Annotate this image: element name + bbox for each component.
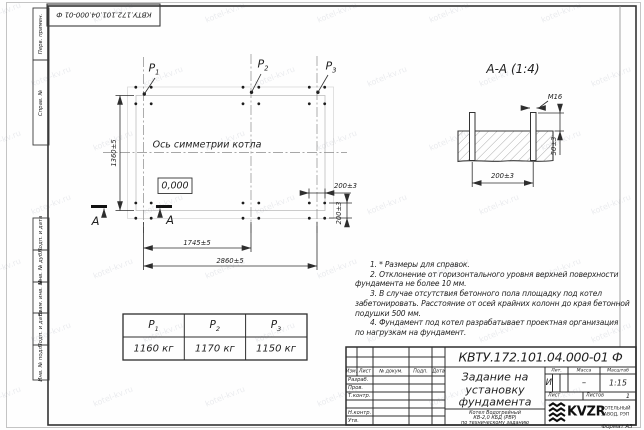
- kvzr-logo-icon: [549, 403, 565, 421]
- sig-col-izm: Изм.: [346, 369, 357, 374]
- note-line: 1. * Размеры для справок.: [355, 260, 617, 270]
- sig-col-docno: № докум.: [379, 369, 403, 374]
- dim-1360: 1360±5: [110, 139, 118, 166]
- brand-subtitle-2: ЗАВОД, РЭП: [601, 413, 629, 418]
- title-block-doc-number: КВТУ.172.101.04.000-01 Ф: [458, 350, 622, 365]
- lit-label: Лит.: [551, 368, 562, 373]
- scale-value: 1:15: [609, 378, 627, 387]
- dim-50: 50±3: [550, 137, 558, 156]
- note-line: фундамента не более 10 мм.: [355, 279, 617, 289]
- dim-200-section: 200±3: [491, 172, 514, 180]
- dim-2860: 2860±5: [216, 257, 243, 265]
- doc-number-top: КВТУ.172.101.04.000-01 Ф: [56, 11, 151, 20]
- lit-value: И: [546, 378, 552, 388]
- doc-title-line1: Задание на: [462, 371, 529, 384]
- brand-name: KVZR: [567, 405, 605, 420]
- load-point-label-p3: Р3: [326, 59, 337, 74]
- sig-row-tkontr: Т.контр.: [348, 393, 370, 399]
- brand-subtitle-1: КОТЕЛЬНЫЙ: [601, 406, 631, 411]
- note-line: подушки 500 мм.: [355, 309, 617, 319]
- sig-col-podp: Подп.: [413, 369, 428, 374]
- dim-1745: 1745±5: [183, 239, 210, 247]
- margin-label-perv-primen: Перв. примен.: [38, 14, 44, 54]
- note-line: 2. Отклонение от горизонтального уровня …: [355, 270, 617, 280]
- doc-title-line3: фундамента: [459, 396, 532, 409]
- sig-row-prov: Пров.: [348, 385, 363, 391]
- sig-row-razrab: Разраб.: [348, 377, 368, 383]
- sig-row-utv: Утв.: [348, 418, 359, 424]
- load-point-label-p2: Р2: [258, 57, 269, 72]
- elevation-mark: 0,000: [161, 181, 188, 192]
- margin-label-sprav-no: Справ. №: [38, 89, 44, 115]
- product-line3: по техническому заданию: [461, 420, 529, 426]
- note-line: 4. Фундамент под котел разрабатывает про…: [355, 318, 617, 328]
- mass-label: Масса: [577, 368, 592, 373]
- section-mark-letter-right: А: [166, 213, 174, 227]
- scale-label: Масштаб: [607, 368, 629, 373]
- note-line: по нагрузкам на фундамент.: [355, 328, 617, 338]
- dim-200-horizontal: 200±3: [334, 182, 357, 190]
- doc-title-line2: установку: [465, 383, 524, 396]
- sheets-label: Листов: [586, 394, 604, 399]
- sheet-label: Лист: [548, 394, 560, 399]
- load-value-p1: 1160 кг: [134, 343, 174, 354]
- sig-col-list: Лист: [359, 369, 371, 374]
- load-value-p2: 1170 кг: [195, 343, 235, 354]
- sheets-value: 1: [626, 392, 630, 400]
- sig-col-data: Дата: [432, 369, 444, 374]
- sig-row-nkontr: Н.контр.: [348, 410, 371, 416]
- format-label: Формат А3: [601, 424, 632, 430]
- margin-label-inv-podl: Инв. № подл.: [38, 344, 44, 381]
- margin-label-podp-data-2: Подп. и дата: [38, 311, 44, 348]
- load-point-label-p1: Р1: [149, 61, 160, 76]
- drawing-sheet: КВТУ.172.101.04.000-01 Ф Перв. примен. С…: [0, 0, 644, 430]
- section-mark-letter-left: А: [92, 214, 100, 228]
- technical-notes: 1. * Размеры для справок. 2. Отклонение …: [355, 260, 617, 338]
- load-table-header-p1: Р1: [148, 318, 158, 332]
- mass-value: –: [582, 378, 586, 388]
- load-table-header-p3: Р3: [271, 318, 281, 332]
- note-line: 3. В случае отсутствия бетонного пола пл…: [355, 289, 617, 299]
- note-line: забетонировать. Расстояние от осей крайн…: [355, 299, 617, 309]
- dim-200-vertical: 200±3: [335, 202, 343, 225]
- bolt-thread-label: М16: [548, 93, 563, 101]
- section-view-title: А-А (1:4): [486, 62, 539, 76]
- load-table-header-p2: Р2: [210, 318, 220, 332]
- boiler-symmetry-axis-label: Ось симметрии котла: [153, 140, 262, 151]
- load-value-p3: 1150 кг: [256, 343, 296, 354]
